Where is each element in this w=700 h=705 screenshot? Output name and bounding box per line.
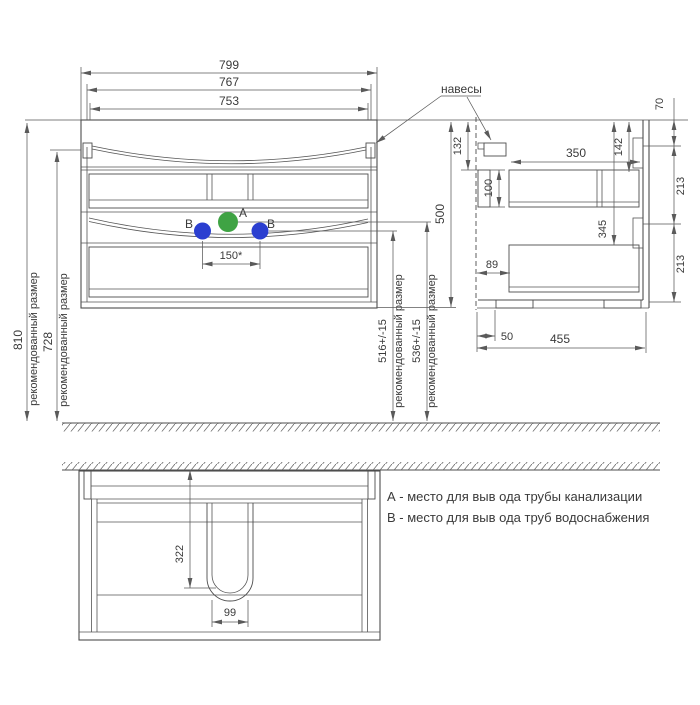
legend: А - место для выв ода трубы канализации … (387, 489, 649, 525)
basin-curve-upper (92, 146, 366, 161)
dim-753-label: 753 (219, 94, 239, 108)
dim-799-label: 799 (219, 58, 239, 72)
outlet-a-label: A (239, 206, 247, 220)
dim-142-label: 142 (613, 138, 625, 156)
dim-728-label: 728 (41, 332, 55, 352)
side-front-panel (643, 120, 649, 308)
siphon-recess-side (597, 170, 602, 207)
bottom-hanger-right (368, 471, 375, 499)
sewage-outlet-a (218, 212, 238, 232)
outlet-b-right-label: B (267, 217, 275, 231)
front-hanger-left (83, 143, 92, 158)
drain-height-dimensions: 516+/-15 рекомендованный размер 536+/-15… (377, 222, 438, 421)
dim-345-label: 345 (597, 220, 609, 238)
dim-767-label: 767 (219, 75, 239, 89)
front-hanger-right (366, 143, 375, 158)
dim-516-label: 516+/-15 (377, 319, 389, 363)
dim-70-label: 70 (654, 98, 666, 110)
side-bottom-drawer (509, 245, 639, 292)
legend-line-b: В - место для выв ода труб водоснабжения (387, 510, 649, 525)
dim-213-upper-label: 213 (675, 177, 687, 195)
hangers-leader-left (376, 96, 441, 143)
wall-hatch (62, 462, 660, 470)
side-foot-front (604, 300, 641, 308)
hangers-label: навесы (441, 82, 482, 96)
dim-536-label: 536+/-15 (411, 319, 423, 363)
dim-99-label: 99 (224, 607, 236, 619)
dim-50-label: 50 (501, 331, 513, 343)
dim-350-label: 350 (566, 146, 586, 160)
vanity-installation-drawing: A B B 799 767 753 150* 810 рекомендованн… (0, 0, 700, 700)
side-view-dimensions: 500 132 100 350 142 345 70 213 213 89 50… (376, 82, 687, 353)
water-outlet-b-left (194, 223, 211, 240)
outlet-b-left-label: B (185, 217, 193, 231)
bottom-view-dimensions: 322 99 (174, 470, 248, 627)
side-foot-back (496, 300, 533, 308)
dim-322-label: 322 (174, 545, 186, 563)
bottom-hanger-left (84, 471, 91, 499)
legend-line-a: А - место для выв ода трубы канализации (387, 489, 642, 504)
dim-213-lower-label: 213 (675, 255, 687, 273)
water-outlet-b-right (252, 223, 269, 240)
hangers-leader-right (467, 97, 491, 140)
side-top-drawer (509, 170, 639, 207)
dim-100-label: 100 (483, 179, 495, 197)
dim-150-label: 150* (220, 250, 243, 262)
left-height-dimensions: 810 рекомендованный размер 728 рекомендо… (11, 123, 81, 421)
front-view: A B B (81, 120, 377, 308)
dim-810-note: рекомендованный размер (28, 272, 40, 406)
siphon-recess-dividers (207, 174, 253, 200)
siphon-cutout-outer (207, 503, 253, 601)
dim-132-label: 132 (452, 137, 464, 155)
siphon-cutout-inner (212, 503, 248, 593)
dim-516-note: рекомендованный размер (393, 274, 405, 408)
technical-drawing-page: A B B 799 767 753 150* 810 рекомендованн… (0, 0, 700, 700)
dim-728-note: рекомендованный размер (58, 273, 70, 407)
floor-hatch (62, 423, 660, 432)
dim-89-label: 89 (486, 259, 498, 271)
side-hanger-bracket (484, 143, 506, 156)
dim-455-label: 455 (550, 332, 570, 346)
front-top-drawer (89, 174, 368, 208)
dim-536-note: рекомендованный размер (426, 274, 438, 408)
dim-500-label: 500 (433, 204, 447, 224)
dim-810-label: 810 (11, 330, 25, 350)
